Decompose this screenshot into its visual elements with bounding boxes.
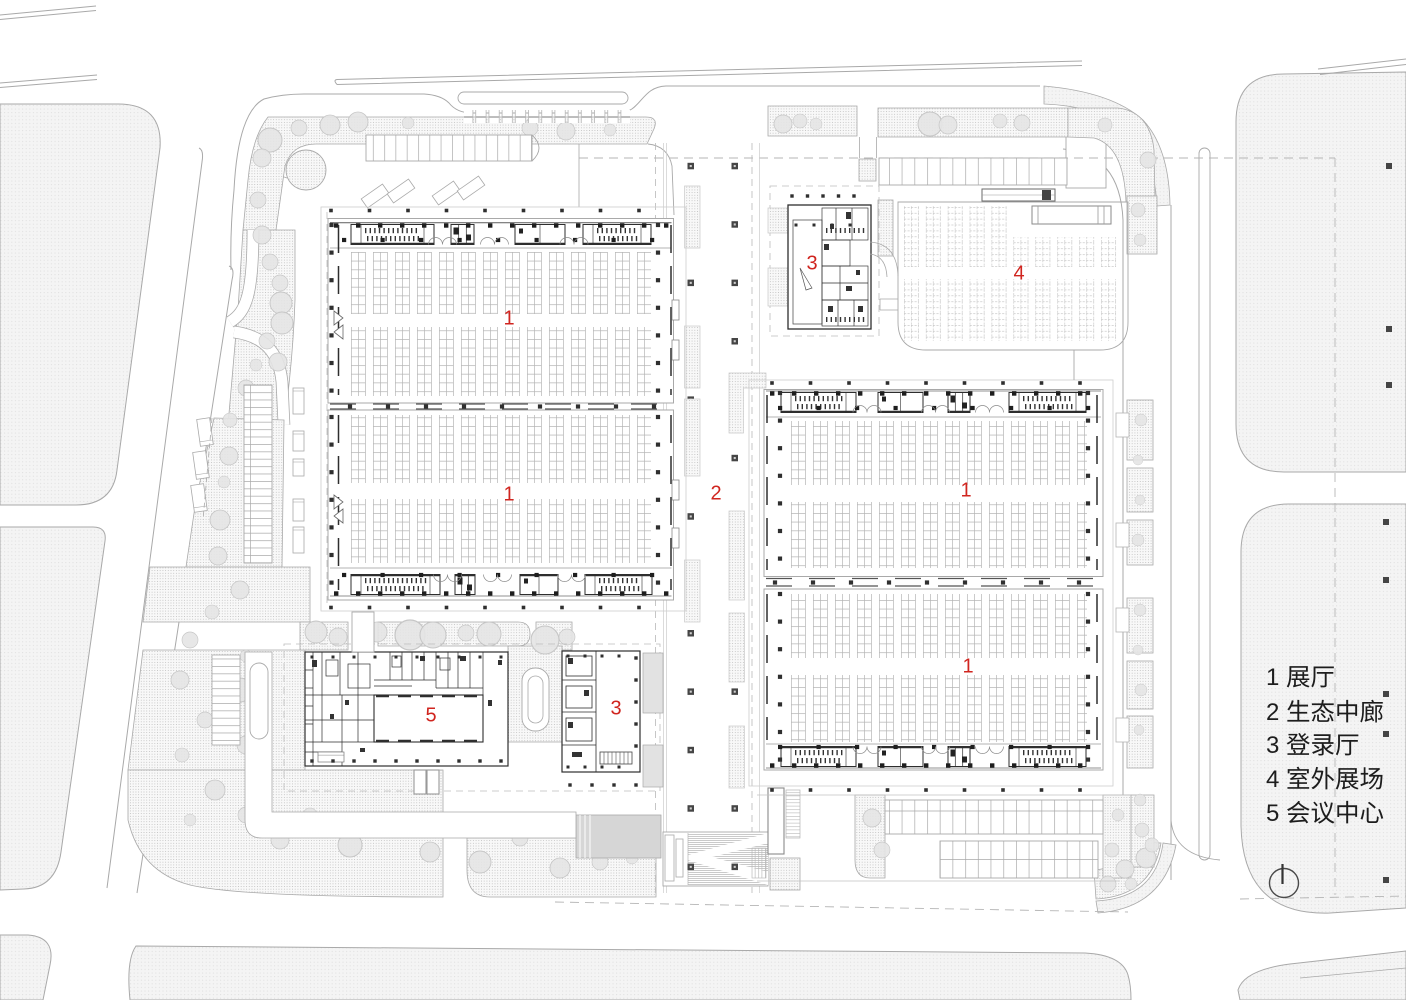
svg-text:1: 1 bbox=[962, 656, 973, 678]
svg-text:2: 2 bbox=[710, 483, 721, 505]
svg-text:3: 3 bbox=[610, 698, 621, 720]
svg-text:5: 5 bbox=[425, 705, 436, 727]
svg-text:4: 4 bbox=[1266, 766, 1279, 793]
svg-text:1: 1 bbox=[1266, 664, 1279, 691]
svg-text:1: 1 bbox=[960, 480, 971, 502]
svg-text:3: 3 bbox=[1266, 732, 1279, 759]
svg-text:1: 1 bbox=[503, 484, 514, 506]
svg-text:3: 3 bbox=[806, 253, 817, 275]
svg-text:2: 2 bbox=[1266, 699, 1279, 726]
svg-text:4: 4 bbox=[1013, 263, 1024, 285]
svg-text:5: 5 bbox=[1266, 800, 1279, 827]
svg-text:1: 1 bbox=[503, 308, 514, 330]
